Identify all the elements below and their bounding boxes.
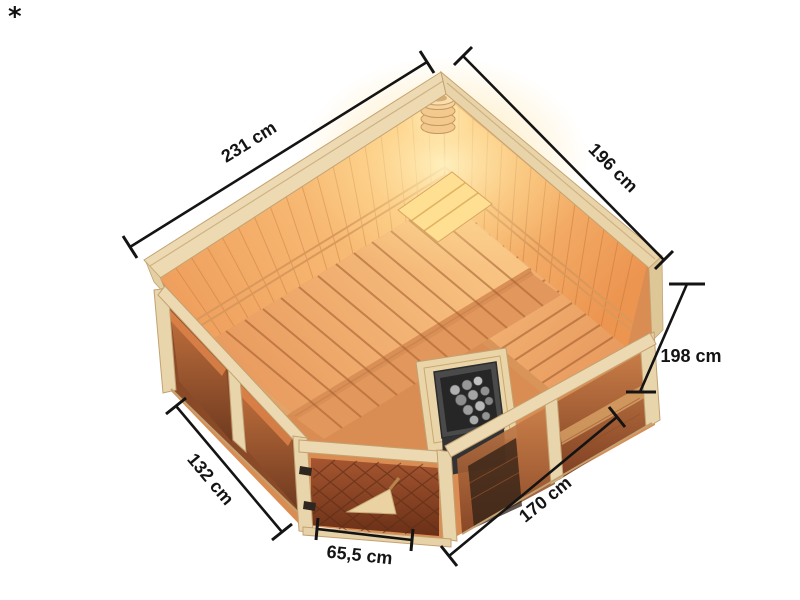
- product-dimension-image: 231 cm 196 cm 198 cm 132 cm 65,5 cm 170 …: [0, 0, 800, 600]
- dimension-label-65-5: 65,5 cm: [326, 542, 394, 569]
- sauna-illustration: [144, 57, 663, 547]
- footnote-asterisk: *: [8, 2, 22, 32]
- dimension-label-198: 198 cm: [660, 346, 721, 366]
- sauna-dimension-diagram: 231 cm 196 cm 198 cm 132 cm 65,5 cm 170 …: [0, 0, 800, 600]
- dimension-label-132: 132 cm: [183, 449, 238, 509]
